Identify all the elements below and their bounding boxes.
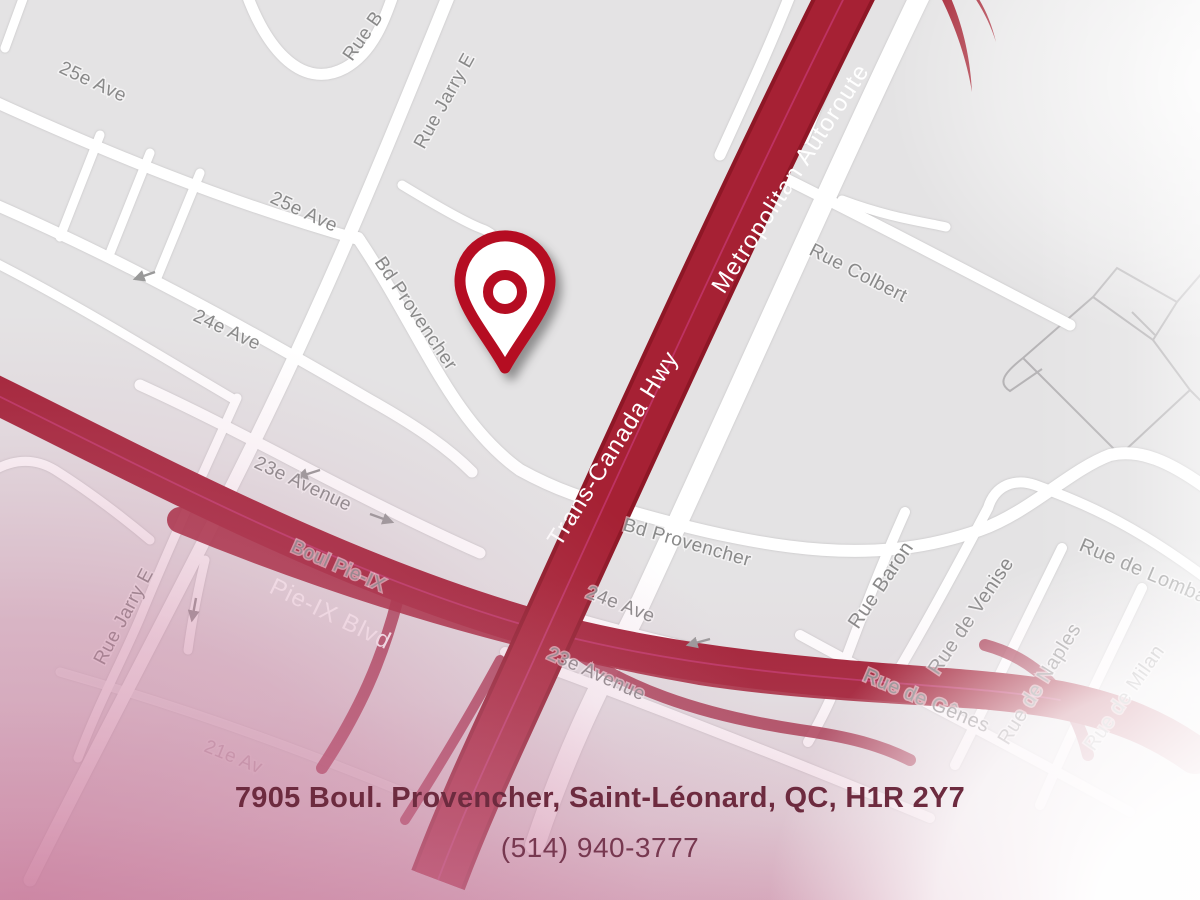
phone-number[interactable]: (514) 940-3777: [0, 832, 1200, 864]
map-canvas: 25e Ave Rue B Rue Jarry E 25e Ave 24e Av…: [0, 0, 1200, 900]
map-svg: 25e Ave Rue B Rue Jarry E 25e Ave 24e Av…: [0, 0, 1200, 900]
